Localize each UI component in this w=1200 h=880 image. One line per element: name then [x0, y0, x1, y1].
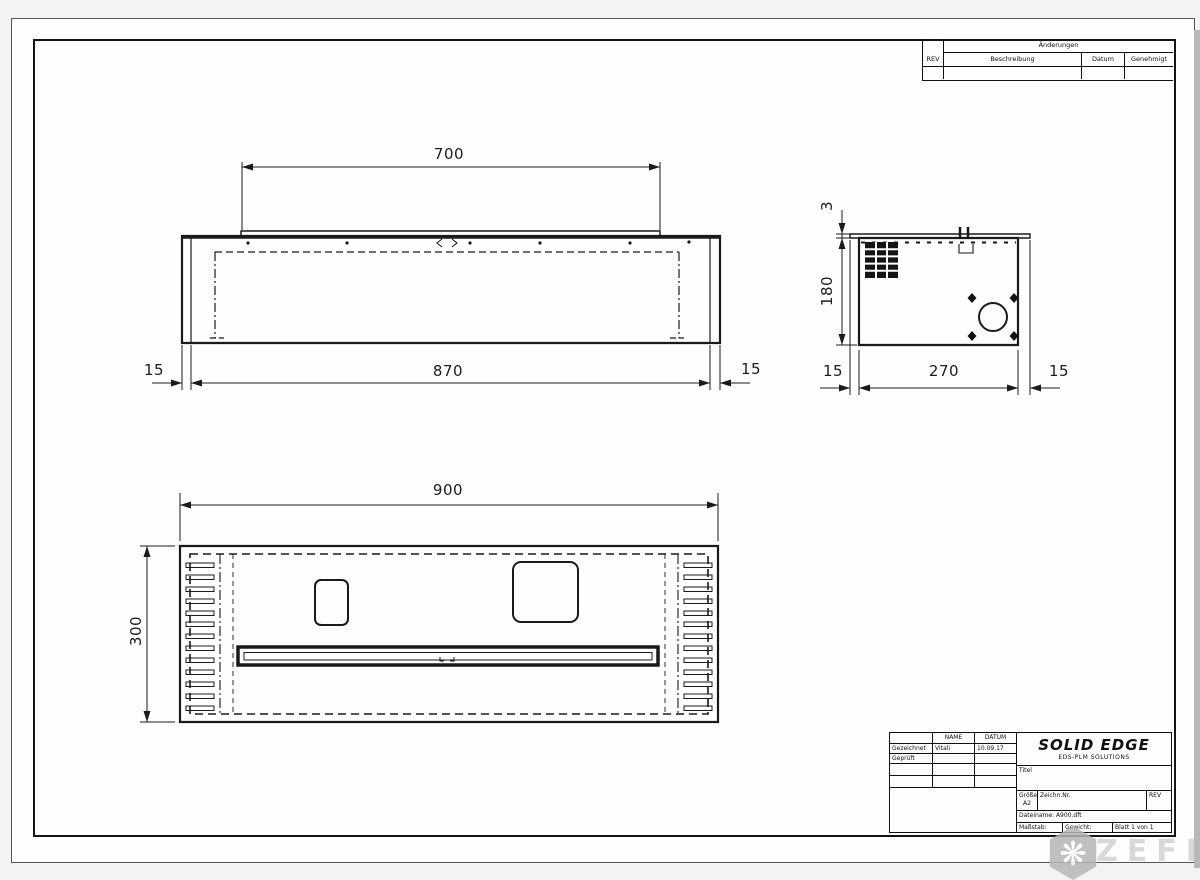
tb-gezeichnet-date: 10.09.17 [975, 744, 1017, 754]
tb-gezeichnet-name: Vitali [933, 744, 975, 754]
dim-plan-depth: 300 [127, 611, 145, 651]
zefire-watermark: ZEFIRE [1096, 834, 1200, 869]
vent-slots-left [186, 563, 214, 711]
tb-groesse-label: Größe [1019, 792, 1037, 799]
revisions-empty-cell [1082, 67, 1125, 79]
dim-front-left-wall: 15 [142, 361, 166, 379]
tb-gezeichnet-label: Gezeichnet [890, 744, 933, 754]
solid-edge-subtitle: EDS-PLM SOLUTIONS [1019, 754, 1169, 761]
tb-logo-cell: SOLID EDGE EDS-PLM SOLUTIONS [1017, 733, 1171, 766]
revisions-col-beschreibung: Beschreibung [944, 53, 1082, 67]
tb-groesse-cell: Größe A2 [1017, 791, 1038, 811]
revisions-empty-cell [923, 67, 944, 79]
revisions-empty-cell [1125, 67, 1173, 79]
vent-grille [865, 242, 898, 278]
dim-front-right-wall: 15 [739, 360, 763, 378]
revisions-rev-header-spacer [923, 39, 944, 53]
tb-massstab-cell: Maßstab: [1017, 823, 1063, 832]
mount-diamonds [968, 293, 1019, 341]
tb-geprueft-name [933, 754, 975, 764]
revisions-table: Änderungen REV Beschreibung Datum Genehm… [922, 39, 1173, 81]
tb-rev-cell: REV [1147, 791, 1171, 811]
tb-geprueft-date [975, 754, 1017, 764]
revisions-title: Änderungen [944, 39, 1173, 53]
fastener-dots [246, 240, 690, 244]
dim-side-right-flange: 15 [1047, 362, 1071, 380]
dim-side-height: 180 [818, 271, 836, 311]
dim-front-top-width: 700 [429, 145, 469, 163]
revisions-col-genehmigt: Genehmigt [1125, 53, 1173, 67]
tb-empty-row [933, 776, 975, 788]
tb-zeichn-cell: Zeichn.Nr. [1038, 791, 1147, 811]
plan-view-drawing [120, 475, 760, 745]
front-view-drawing [140, 140, 780, 400]
large-cutout [513, 562, 578, 622]
tb-blank-area [890, 788, 1017, 832]
tb-empty-row [975, 776, 1017, 788]
tb-corner-empty [890, 733, 933, 744]
dim-plan-width: 900 [428, 481, 468, 499]
tb-geprueft-label: Geprüft [890, 754, 933, 764]
tb-empty-row [890, 776, 933, 788]
dim-side-depth: 270 [924, 362, 964, 380]
tb-titel-cell: Titel [1017, 766, 1171, 791]
small-cutout [315, 580, 348, 625]
center-mark [437, 239, 457, 247]
tb-empty-row [890, 764, 933, 776]
solid-edge-logo: SOLID EDGE [1019, 737, 1169, 754]
revisions-col-datum: Datum [1082, 53, 1125, 67]
tb-dateiname-cell: Dateiname: A900.dft [1017, 811, 1171, 823]
tb-blatt-cell: Blatt 1 von 1 [1113, 823, 1171, 832]
dim-side-flange: 3 [818, 186, 836, 226]
tb-name-col: NAME [933, 733, 975, 744]
revisions-empty-cell [944, 67, 1082, 79]
revisions-col-rev: REV [923, 53, 944, 67]
sheet-shadow [1194, 30, 1200, 868]
title-block: NAME DATUM Gezeichnet Vitali 10.09.17 Ge… [889, 732, 1172, 833]
tb-empty-row [933, 764, 975, 776]
dim-front-bottom-width: 870 [428, 362, 468, 380]
tb-datum-col: DATUM [975, 733, 1017, 744]
connector-bracket [959, 244, 973, 253]
dim-side-left-flange: 15 [821, 362, 845, 380]
tb-empty-row [975, 764, 1017, 776]
circular-port [979, 303, 1007, 331]
tb-groesse-value: A2 [1023, 800, 1031, 807]
burner-slot [238, 647, 658, 665]
